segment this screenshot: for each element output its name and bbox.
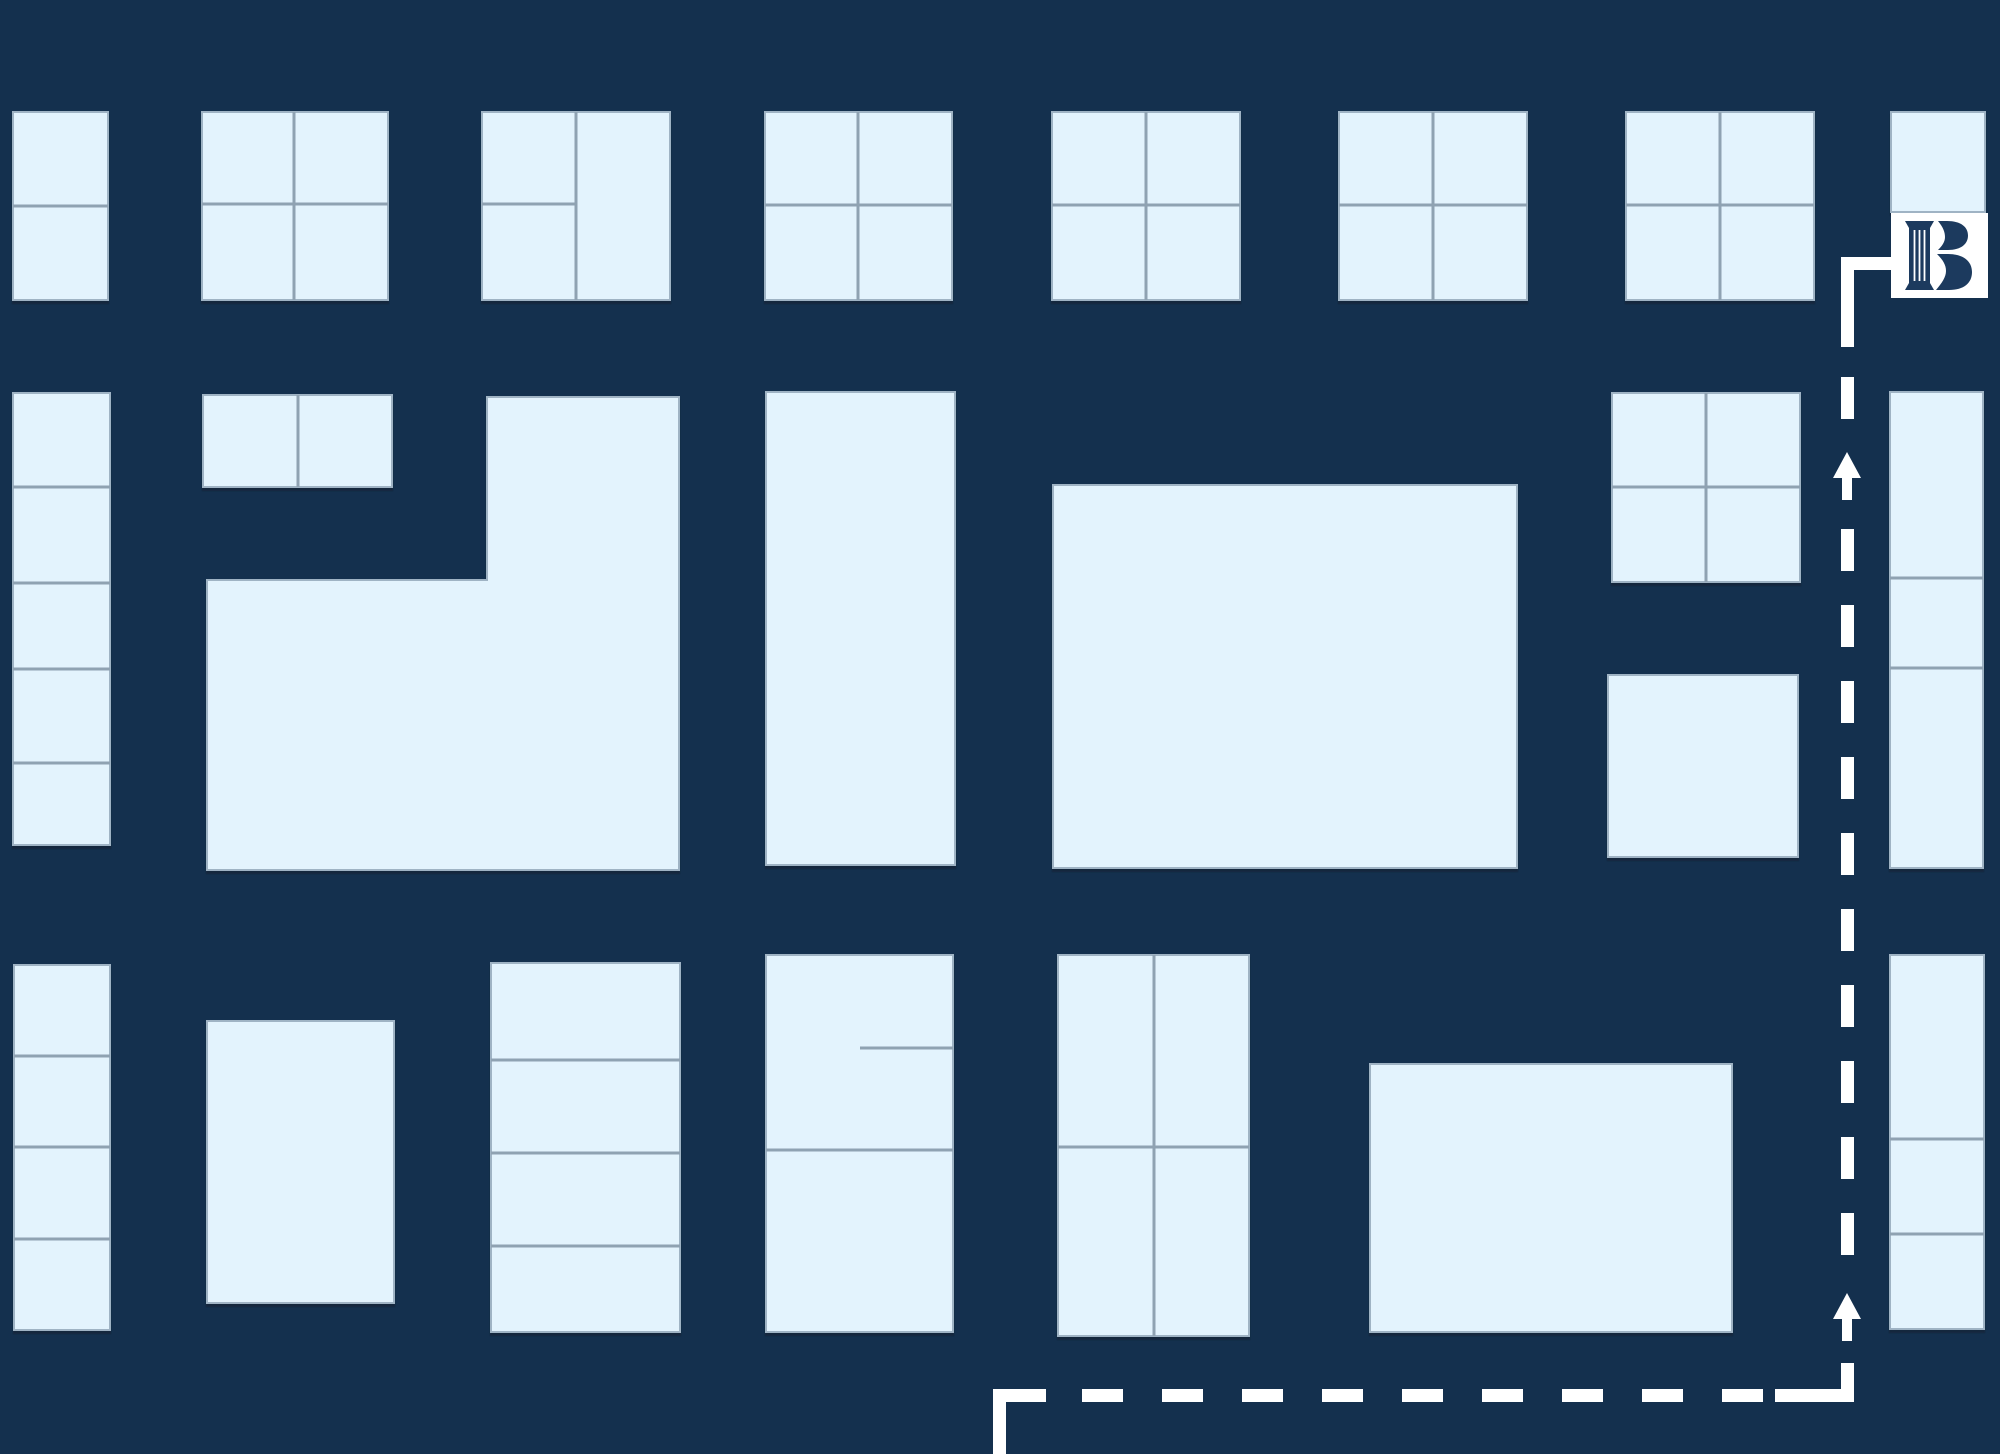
city-block (207, 1021, 394, 1303)
city-map-canvas: B (0, 0, 2000, 1454)
route-solid-segment (1841, 257, 1854, 347)
column-capital (1905, 221, 1934, 228)
route-solid-segment (993, 1389, 1006, 1454)
city-block (491, 963, 680, 1332)
city-block (1890, 955, 1984, 1329)
city-map-illustration: B B (0, 0, 2000, 1454)
city-block (1370, 1064, 1732, 1332)
city-block (766, 392, 955, 865)
city-block (1890, 392, 1983, 868)
column-base (1905, 283, 1934, 290)
city-block (766, 955, 953, 1332)
city-block (1891, 112, 1985, 212)
bank-marker[interactable]: B (1891, 213, 1988, 298)
city-block (1608, 675, 1798, 857)
city-block (1053, 485, 1517, 868)
city-block (13, 393, 110, 845)
route-solid-segment (1775, 1389, 1854, 1402)
